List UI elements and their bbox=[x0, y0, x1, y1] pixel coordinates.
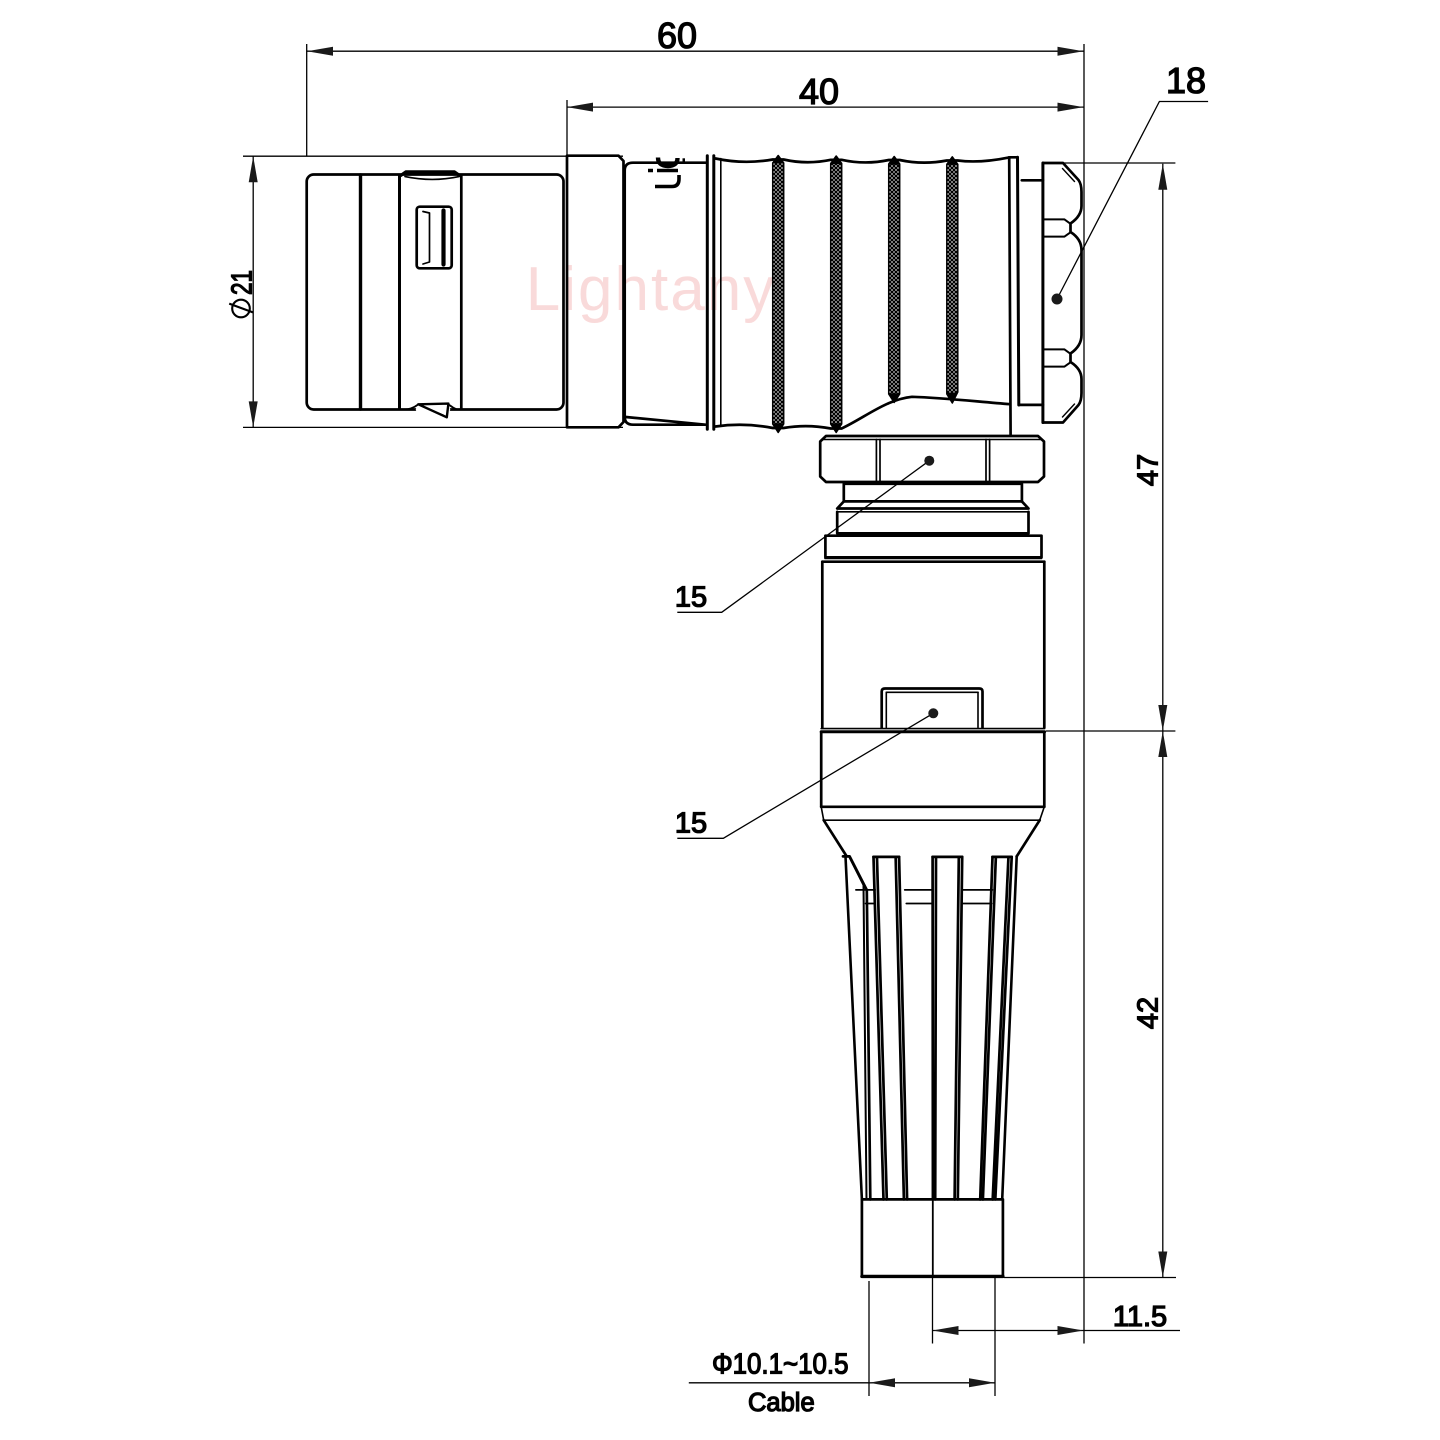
svg-text:21: 21 bbox=[227, 270, 259, 295]
svg-text:Φ10.1~10.5: Φ10.1~10.5 bbox=[712, 1349, 849, 1381]
svg-text:60: 60 bbox=[657, 15, 697, 56]
svg-text:42: 42 bbox=[1133, 997, 1165, 1029]
svg-text:11.5: 11.5 bbox=[1113, 1301, 1167, 1333]
svg-text:15: 15 bbox=[675, 808, 707, 840]
svg-text:Cable: Cable bbox=[748, 1389, 815, 1417]
svg-text:47: 47 bbox=[1133, 454, 1165, 486]
svg-text:15: 15 bbox=[675, 582, 707, 614]
svg-text:40: 40 bbox=[799, 71, 839, 112]
svg-text:18: 18 bbox=[1166, 60, 1206, 101]
